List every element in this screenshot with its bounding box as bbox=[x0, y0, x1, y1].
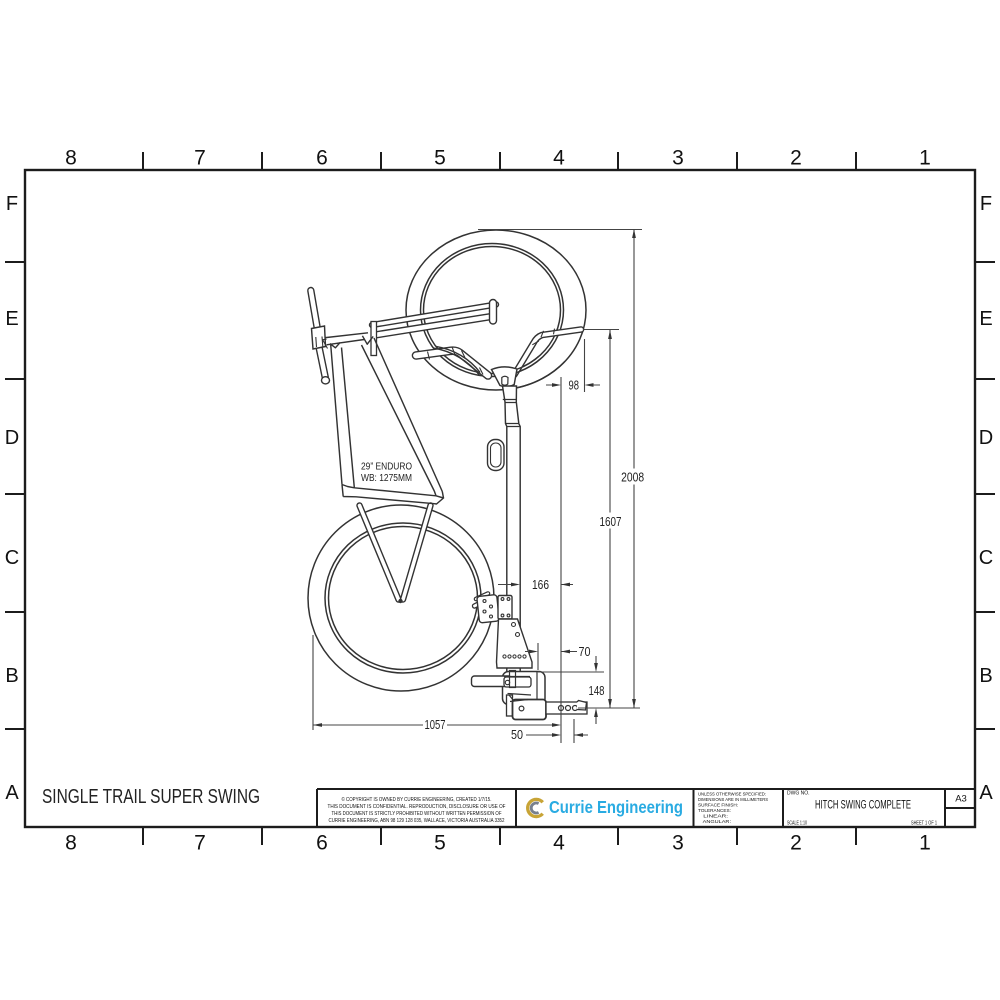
svg-text:F: F bbox=[980, 193, 992, 215]
svg-text:A: A bbox=[5, 782, 19, 804]
svg-text:8: 8 bbox=[65, 832, 77, 855]
svg-text:Currie Engineering: Currie Engineering bbox=[549, 797, 683, 817]
svg-text:5: 5 bbox=[434, 832, 446, 855]
svg-text:6: 6 bbox=[316, 147, 328, 170]
svg-text:HITCH SWING COMPLETE: HITCH SWING COMPLETE bbox=[815, 800, 911, 812]
svg-text:1607: 1607 bbox=[600, 514, 622, 529]
svg-text:2008: 2008 bbox=[621, 470, 644, 485]
svg-text:LINEAR:: LINEAR: bbox=[698, 814, 728, 820]
svg-text:7: 7 bbox=[194, 832, 206, 855]
svg-text:SHEET 1 OF 1: SHEET 1 OF 1 bbox=[911, 821, 937, 827]
svg-text:166: 166 bbox=[532, 577, 549, 592]
svg-text:SCALE 1:10: SCALE 1:10 bbox=[787, 821, 807, 827]
svg-text:C: C bbox=[979, 547, 993, 569]
svg-text:© COPYRIGHT IS OWNED BY CURRIE: © COPYRIGHT IS OWNED BY CURRIE ENGINEERI… bbox=[342, 796, 492, 803]
svg-text:C: C bbox=[5, 547, 19, 569]
svg-text:D: D bbox=[979, 427, 993, 449]
svg-text:SURFACE FINISH:: SURFACE FINISH: bbox=[698, 803, 738, 809]
svg-text:DIMENSIONS ARE IN MILLIMETERS: DIMENSIONS ARE IN MILLIMETERS bbox=[698, 797, 769, 803]
svg-text:THIS DOCUMENT IS CONFIDENTIAL.: THIS DOCUMENT IS CONFIDENTIAL. REPRODUCT… bbox=[328, 804, 507, 810]
svg-text:1: 1 bbox=[919, 832, 931, 855]
svg-text:UNLESS OTHERWISE SPECIFIED:: UNLESS OTHERWISE SPECIFIED: bbox=[698, 792, 766, 798]
svg-text:D: D bbox=[5, 427, 19, 449]
svg-text:TOLERANCES:: TOLERANCES: bbox=[698, 808, 731, 814]
svg-text:148: 148 bbox=[589, 683, 605, 698]
svg-text:70: 70 bbox=[579, 644, 591, 659]
svg-text:THIS DOCUMENT IS STRICTLY PROH: THIS DOCUMENT IS STRICTLY PROHIBITED WIT… bbox=[332, 811, 503, 817]
svg-text:A: A bbox=[979, 782, 993, 804]
svg-text:E: E bbox=[979, 308, 992, 330]
svg-text:DWG NO.: DWG NO. bbox=[787, 791, 810, 797]
svg-text:5: 5 bbox=[434, 147, 446, 170]
svg-text:WB: 1275MM: WB: 1275MM bbox=[361, 473, 412, 484]
svg-text:E: E bbox=[5, 308, 18, 330]
svg-text:50: 50 bbox=[511, 727, 523, 742]
svg-text:3: 3 bbox=[672, 832, 684, 855]
svg-text:1057: 1057 bbox=[425, 717, 446, 732]
svg-text:A3: A3 bbox=[955, 794, 967, 805]
svg-text:6: 6 bbox=[316, 832, 328, 855]
svg-text:B: B bbox=[979, 665, 992, 687]
svg-text:3: 3 bbox=[672, 147, 684, 170]
svg-text:CURRIE ENGINEERING, ABN 98 129: CURRIE ENGINEERING, ABN 98 129 128 035, … bbox=[329, 818, 505, 824]
svg-text:F: F bbox=[6, 193, 18, 215]
svg-text:98: 98 bbox=[569, 378, 580, 393]
svg-text:B: B bbox=[5, 665, 18, 687]
svg-text:4: 4 bbox=[553, 832, 565, 855]
svg-text:ANGULAR:: ANGULAR: bbox=[698, 819, 731, 825]
svg-text:2: 2 bbox=[790, 832, 802, 855]
svg-text:7: 7 bbox=[194, 147, 206, 170]
svg-text:1: 1 bbox=[919, 147, 931, 170]
svg-text:2: 2 bbox=[790, 147, 802, 170]
svg-text:8: 8 bbox=[65, 147, 77, 170]
svg-text:29” ENDURO: 29” ENDURO bbox=[361, 462, 412, 473]
svg-text:SINGLE TRAIL SUPER SWING: SINGLE TRAIL SUPER SWING bbox=[42, 785, 260, 808]
svg-text:4: 4 bbox=[553, 147, 565, 170]
